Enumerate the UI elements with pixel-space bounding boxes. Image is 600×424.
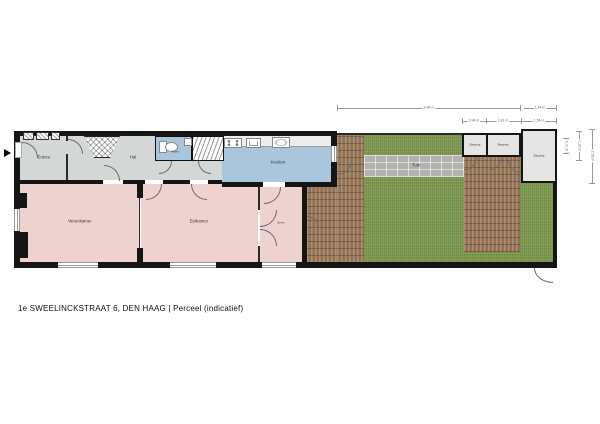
staircase-icon [192,136,224,161]
dim-tick [337,105,338,111]
label-entree: Entree [38,156,51,160]
dim-tick [556,105,557,111]
dim-label-shed3: 1,54 m [533,119,546,122]
facade-pier-top [14,193,27,208]
kitchen-basin-icon [272,137,290,148]
hall-divider-d [208,180,222,184]
sink-icon [246,138,261,148]
kitchen-bottom-wall-right [285,182,337,187]
dim-tick [486,118,487,124]
ensuite-block-bottom [137,248,143,262]
dim-label-side-2: 1,16 m [577,140,580,153]
window-diningroom-rear [170,262,216,268]
dim-tick [556,118,557,124]
meter-icon [51,132,60,140]
entree-divider [66,154,68,180]
label-serre: Serre [277,221,285,224]
ensuite-doors-line [139,198,140,248]
label-berging-3: Berging [534,154,545,157]
label-woonkamer: Woonkamer [68,220,91,224]
hall-divider-c [163,180,190,184]
label-keuken: Keuken [271,161,286,165]
dim-tick [576,131,582,132]
hall-divider-a [20,180,103,184]
dim-tick [589,183,595,184]
front-door-gap [15,142,22,158]
window-livingroom-rear [58,262,98,268]
deck-left-strip [337,135,364,263]
label-eetkamer: Eetkamer [190,220,208,224]
serre-divider-top [258,187,260,210]
garden-gate-arc [534,268,553,283]
dim-tick [462,118,463,124]
label-berging-2: Berging [498,143,509,146]
label-toilet: Toilet [171,150,178,153]
ensuite-block-top [137,184,143,198]
entrance-arrow-icon [4,149,11,157]
facade-pier-bottom [14,232,28,258]
label-tuin: Tuin [412,164,420,168]
dim-label-side-3: 2,35 m [590,150,593,163]
dim-label-garden: 9,94 m [423,106,436,109]
serre-divider-bottom [258,246,260,262]
window-serre-rear [262,262,296,268]
window-front-bay [14,209,20,231]
floorplan-canvas: Entree Hal Toilet Keuken Woonkamer Eetka… [0,0,600,424]
dim-tick [521,118,522,124]
dim-tick [520,105,521,111]
dim-label-shed3-top: 1,54 m [534,106,547,109]
toilet-sink-icon [184,138,192,146]
dim-tick [563,153,569,154]
dim-label-side-1: 0,71 m [564,140,567,153]
dim-label-shed2: 1,41 m [497,119,510,122]
dim-tick [576,160,582,161]
deck-middle [464,157,520,252]
kitchen-bottom-wall-left [222,182,263,187]
label-berging-1: Berging [470,143,481,146]
stove-icon [224,138,242,148]
label-hal: Hal [130,156,136,160]
dim-tick [589,129,595,130]
plan-caption: 1e SWEELINCKSTRAAT 6, DEN HAAG | Perceel… [18,304,243,313]
fusebox-icon [36,132,49,140]
dim-label-shed1: 0,94 m [468,119,481,122]
meter-cupboard-icon [23,132,34,140]
